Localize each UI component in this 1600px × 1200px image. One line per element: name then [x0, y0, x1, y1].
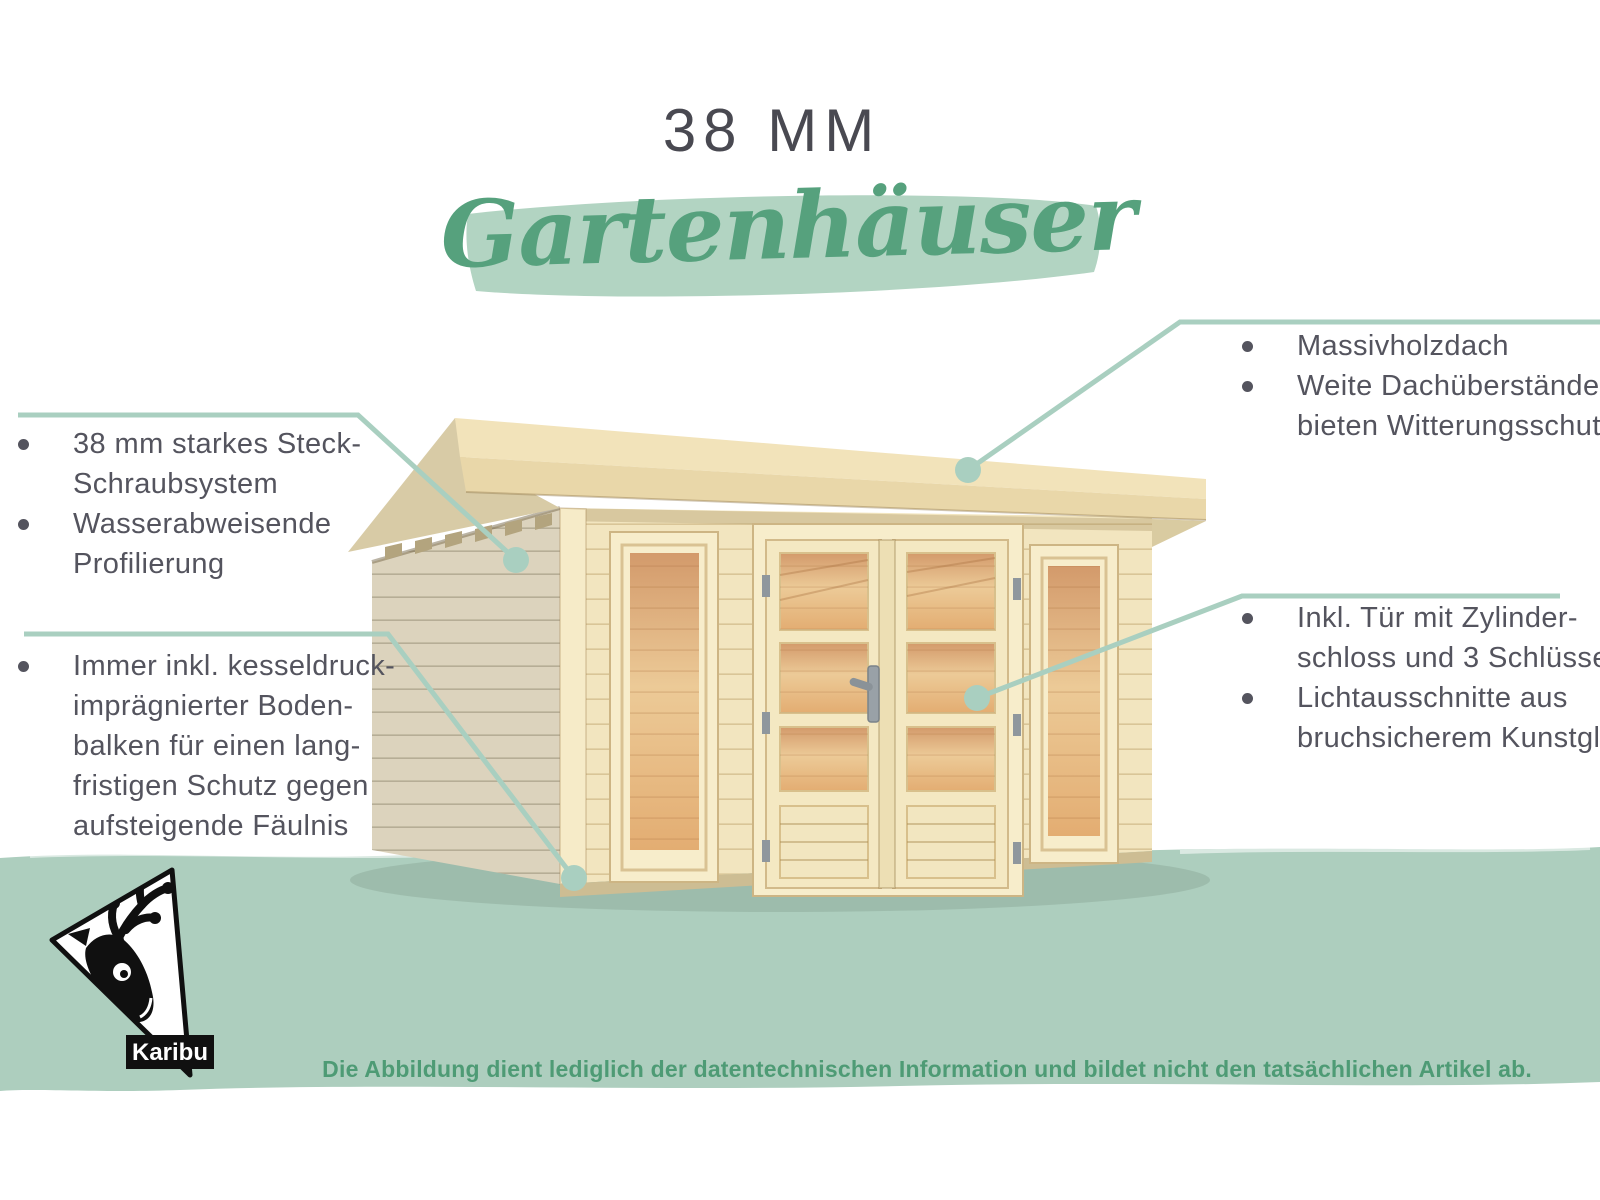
callout-line-text: balken für einen lang- [73, 726, 395, 766]
callout-line-text: Massivholzdach [1297, 326, 1509, 366]
callout-dot-door [964, 685, 990, 711]
callout-line-text: Immer inkl. kesseldruck- [73, 646, 395, 686]
callout-line-text: imprägnierter Boden- [73, 686, 395, 726]
bullet-dot [1242, 693, 1253, 704]
side-wall-planks [372, 508, 560, 884]
callout-item: 38 mm starkes Steck- Schraubsystem [18, 424, 361, 504]
callout-line-text: bieten Witterungsschutz [1297, 406, 1600, 446]
callout-item: Immer inkl. kesseldruck- imprägnierter B… [18, 646, 395, 846]
right-window [1030, 545, 1118, 863]
callout-item: Lichtausschnitte aus bruchsicherem Kunst… [1242, 678, 1600, 758]
callout-line-text: Inkl. Tür mit Zylinder- [1297, 598, 1600, 638]
callout-left-bottom: Immer inkl. kesseldruck- imprägnierter B… [18, 646, 395, 846]
roof-right-overhang-shadow [1152, 519, 1206, 547]
bullet-dot [18, 661, 29, 672]
callout-dot-roof [955, 457, 981, 483]
left-window [610, 532, 718, 882]
callout-line-text: bruchsicherem Kunstglas [1297, 718, 1600, 758]
callout-dot-walls [503, 547, 529, 573]
callout-item: Massivholzdach [1242, 326, 1600, 366]
callout-left-top: 38 mm starkes Steck- Schraubsystem Wasse… [18, 424, 361, 584]
callout-line-text: schloss und 3 Schlüsseln [1297, 638, 1600, 678]
logo-brand-text: Karibu [132, 1039, 208, 1066]
bullet-dot [18, 519, 29, 530]
callout-item: Weite Dachüberstände bieten Witterungssc… [1242, 366, 1600, 446]
door-center-seam [879, 540, 895, 888]
bullet-dot [1242, 613, 1253, 624]
callout-line-text: Wasserabweisende [73, 504, 331, 544]
callout-dot-floor-beams [561, 865, 587, 891]
bullet-dot [1242, 341, 1253, 352]
page-title: 38 MM [663, 96, 881, 165]
callout-line-text: Lichtausschnitte aus [1297, 678, 1600, 718]
callout-line-text: Profilierung [73, 544, 331, 584]
callout-line-text: Weite Dachüberstände [1297, 366, 1600, 406]
callout-right-bottom: Inkl. Tür mit Zylinder- schloss und 3 Sc… [1242, 598, 1600, 758]
corner-trim-board [560, 508, 586, 884]
callout-item: Wasserabweisende Profilierung [18, 504, 361, 584]
bullet-dot [18, 439, 29, 450]
callout-line-text: aufsteigende Fäulnis [73, 806, 395, 846]
callout-line-text: 38 mm starkes Steck- [73, 424, 361, 464]
double-door [753, 524, 1023, 896]
bullet-dot [1242, 381, 1253, 392]
callout-line-text: fristigen Schutz gegen [73, 766, 395, 806]
callout-line-text: Schraubsystem [73, 464, 361, 504]
infographic-page: Karibu 38 MM Gartenhäuser 38 mm starkes … [0, 0, 1600, 1200]
disclaimer-text: Die Abbildung dient lediglich der datent… [322, 1056, 1532, 1083]
page-subtitle-script: Gartenhäuser [439, 163, 1136, 289]
callout-top-right: Massivholzdach Weite Dachüberstände biet… [1242, 326, 1600, 446]
callout-item: Inkl. Tür mit Zylinder- schloss und 3 Sc… [1242, 598, 1600, 678]
